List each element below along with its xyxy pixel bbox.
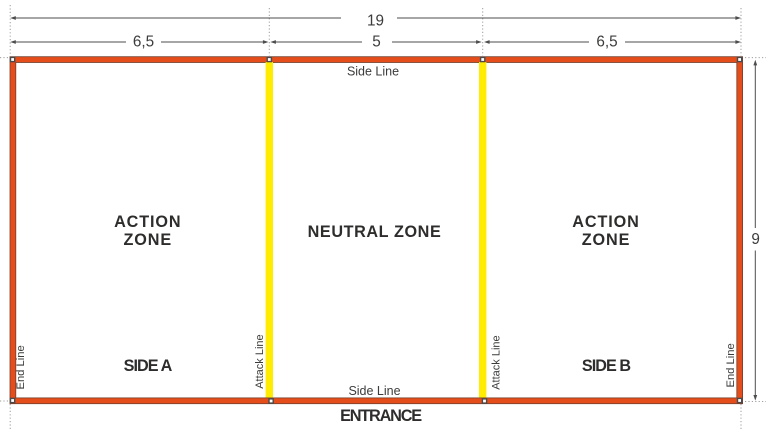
svg-text:ACTION: ACTION: [114, 213, 181, 231]
svg-text:Side Line: Side Line: [348, 384, 400, 398]
svg-text:End Line: End Line: [15, 345, 27, 389]
svg-text:ZONE: ZONE: [582, 231, 631, 249]
svg-text:Side Line: Side Line: [347, 65, 399, 79]
svg-text:SIDE A: SIDE A: [124, 357, 173, 375]
svg-text:19: 19: [367, 12, 384, 29]
svg-text:6,5: 6,5: [133, 33, 154, 50]
svg-text:ACTION: ACTION: [572, 213, 639, 231]
svg-text:9: 9: [751, 231, 760, 248]
svg-text:5: 5: [372, 33, 381, 50]
svg-text:Attack Line: Attack Line: [490, 335, 502, 389]
svg-text:ENTRANCE: ENTRANCE: [340, 407, 422, 425]
svg-text:ZONE: ZONE: [124, 231, 173, 249]
svg-text:NEUTRAL ZONE: NEUTRAL ZONE: [308, 223, 442, 241]
svg-text:End Line: End Line: [725, 343, 737, 387]
svg-text:Attack Line: Attack Line: [254, 334, 266, 388]
svg-text:SIDE B: SIDE B: [582, 357, 631, 375]
svg-text:6,5: 6,5: [596, 33, 617, 50]
